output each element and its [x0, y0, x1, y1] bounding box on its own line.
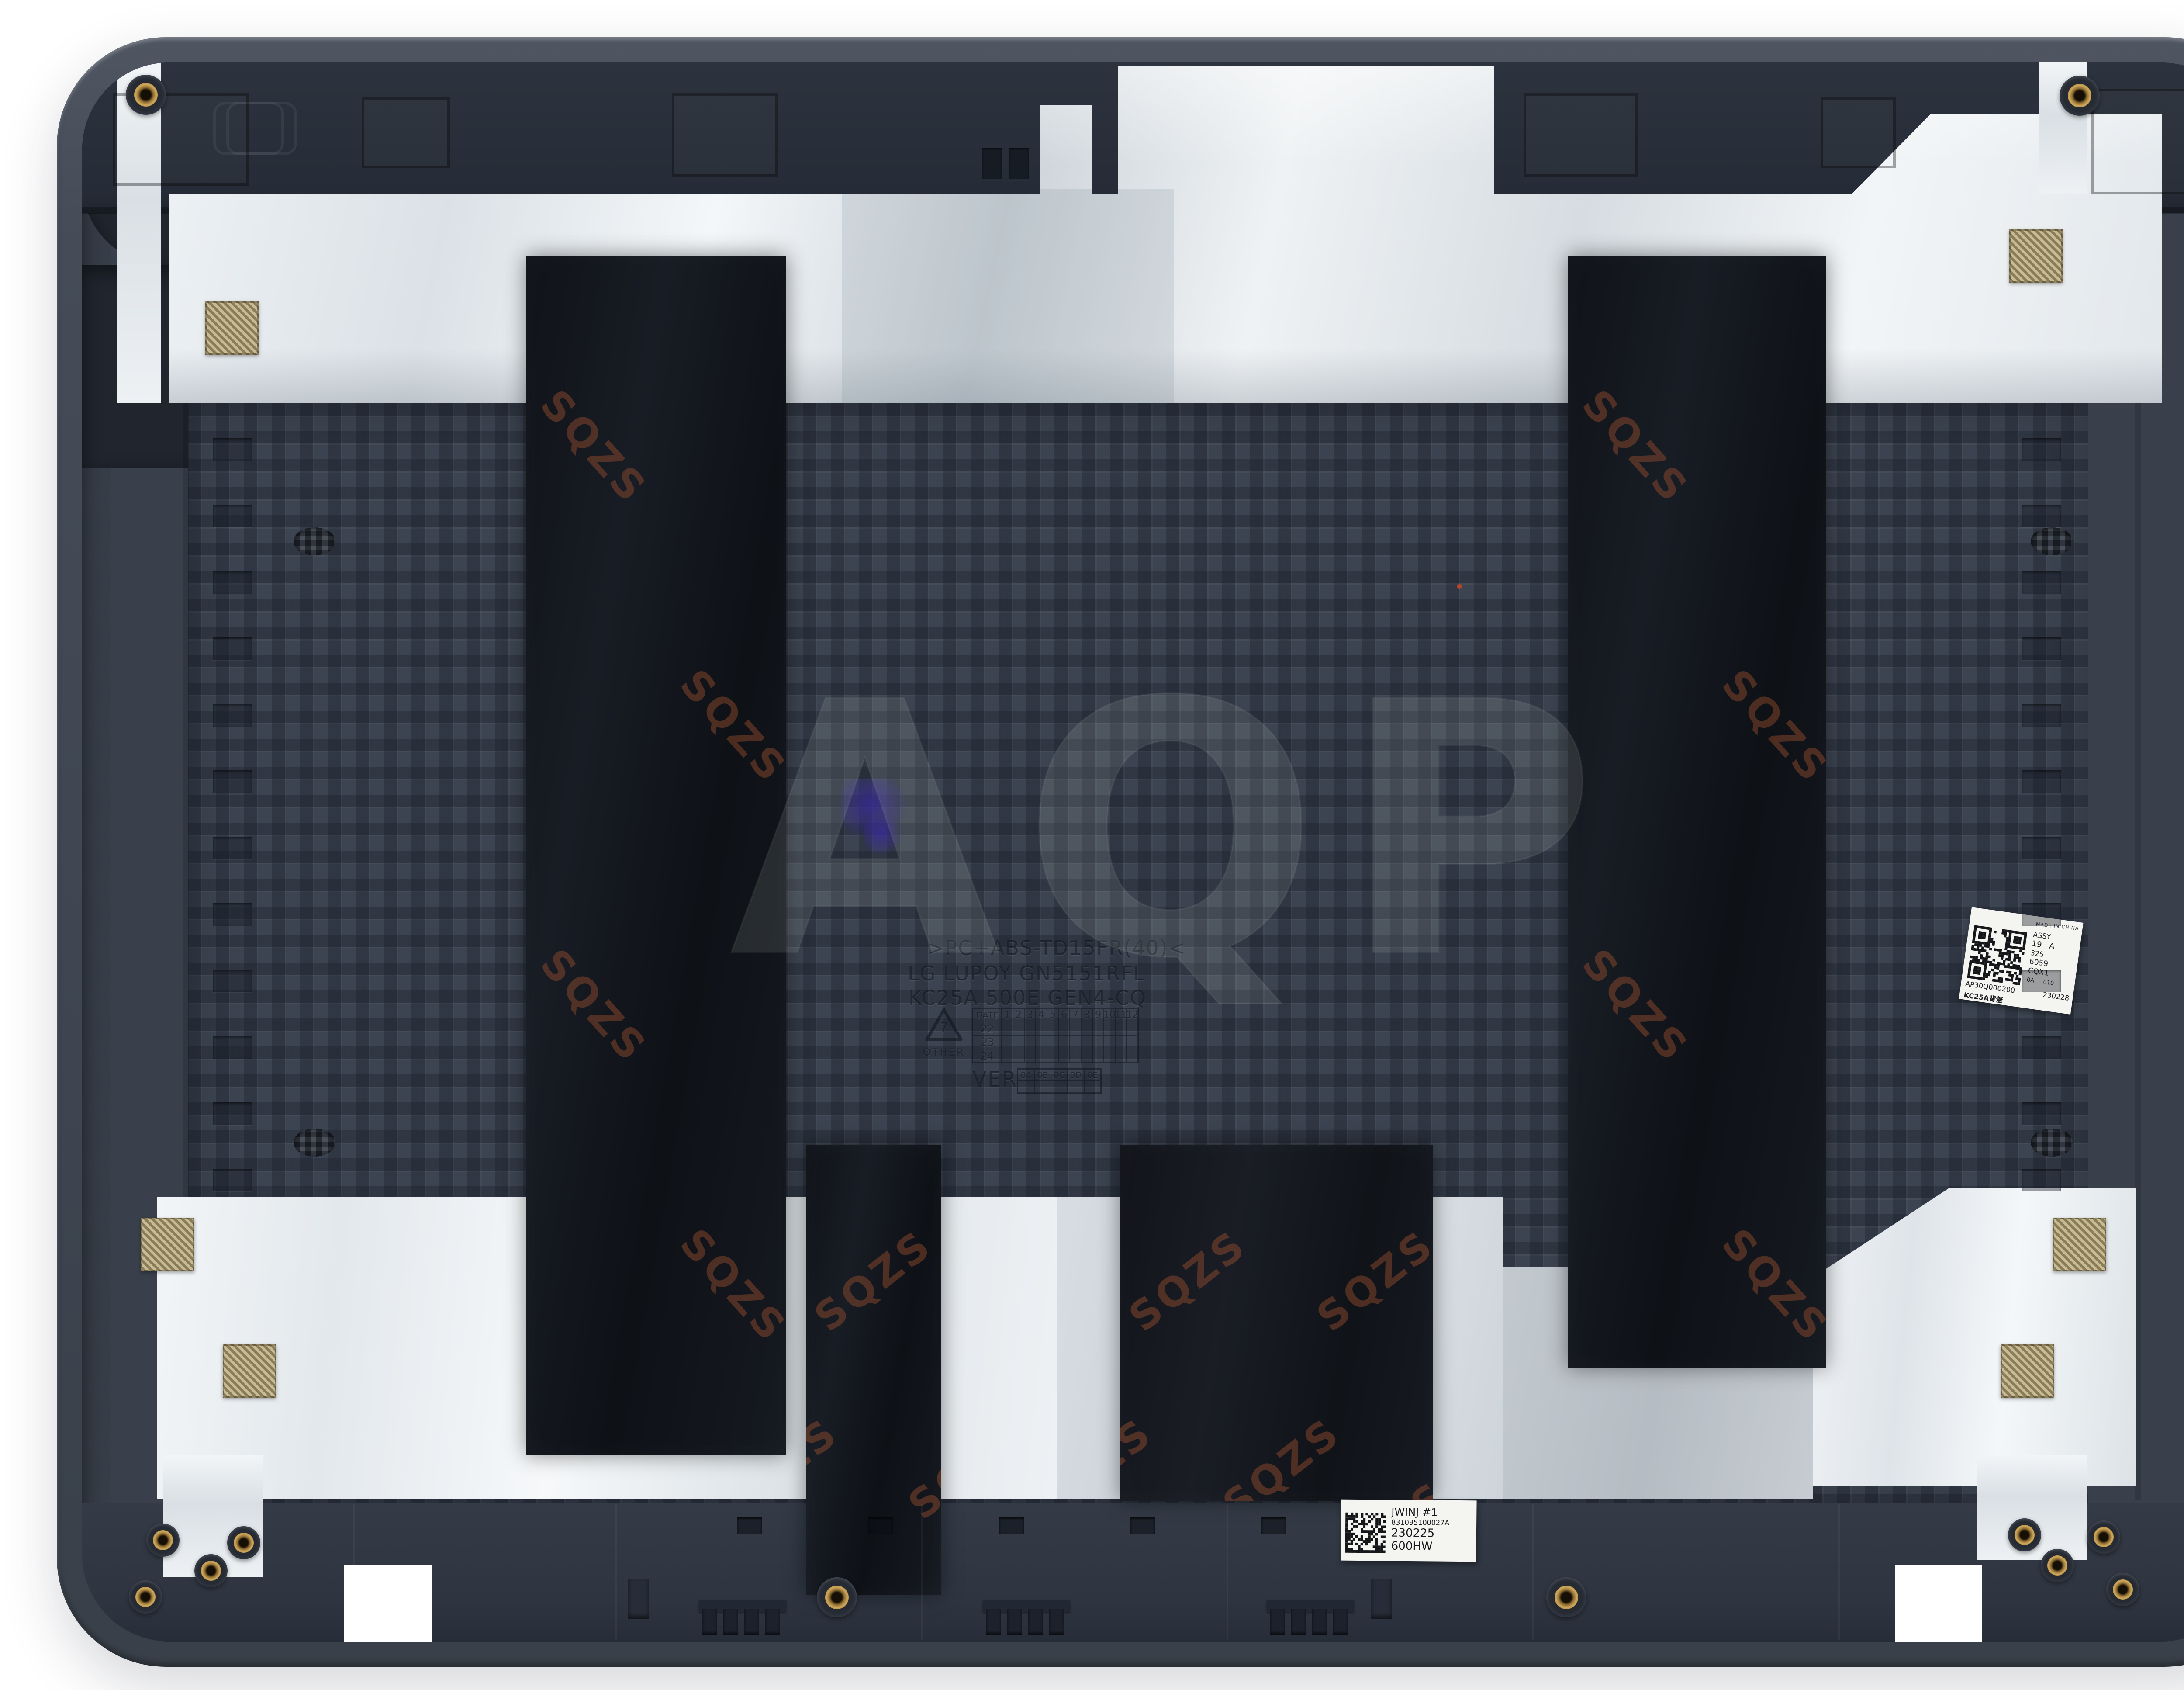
date-grid-cell: [1081, 1049, 1092, 1063]
sqzs-watermark-text: SQZS: [806, 1145, 847, 1153]
snap-clip-tooth: [1312, 1609, 1327, 1635]
date-grid-cell: DATE: [973, 1008, 1002, 1022]
bottom-rect-hole: [1130, 1517, 1155, 1534]
date-grid-cell: [1104, 1035, 1115, 1049]
screw-boss: [126, 75, 166, 115]
snap-clip-tooth: [765, 1609, 780, 1635]
qr-code: [1967, 925, 2027, 985]
date-grid-cell: 11: [1115, 1008, 1127, 1022]
date-grid-cell: 2: [1013, 1008, 1024, 1022]
brass-insert: [2015, 1525, 2035, 1545]
sqzs-watermark-text: SQZS: [806, 1221, 941, 1341]
hinge-notch-right: [1895, 1565, 1982, 1642]
laptop-lcd-back-cover: SQZSSQZSSQZSSQZSSQZSSQZSSQZSSQZSSQZSSQZS…: [57, 37, 2184, 1667]
recycle-code: 7: [924, 1020, 964, 1035]
bottom-seam-line: [921, 1504, 923, 1640]
snap-clip-tooth: [702, 1609, 717, 1635]
ladder-slot-right: [2022, 1102, 2061, 1125]
assy-label-sticker: MADE IN CHINA ASSY 19 A 32S 6059 CQX1 0A…: [1959, 907, 2084, 1015]
sqzs-watermark-text: SQZS: [900, 1145, 941, 1153]
serial-number: 831095100027A: [1391, 1518, 1474, 1527]
date-grid-cell: [1047, 1049, 1058, 1063]
date-grid-cell: [1013, 1022, 1024, 1035]
date-grid-cell: [1024, 1022, 1036, 1035]
date-grid-cell: 10: [1104, 1008, 1115, 1022]
sqzs-watermark-text: SQZS: [1713, 661, 1826, 793]
sqzs-watermark-text: SQZS: [1120, 1409, 1162, 1501]
date-grid-cell: 8: [1081, 1008, 1092, 1022]
date-grid-cell: [1104, 1049, 1115, 1063]
ladder-slot-left: [213, 438, 252, 461]
ladder-slot-left: [213, 1102, 252, 1125]
date-grid-cell: [1058, 1049, 1070, 1063]
date-grid-cell: 3: [1024, 1008, 1036, 1022]
ladder-slot-left: [213, 505, 252, 527]
ejector-waffle-mark: [2031, 1129, 2073, 1157]
ladder-slot-left: [213, 970, 252, 992]
top-molded-box: [672, 93, 778, 177]
snap-clip-tooth: [1049, 1609, 1064, 1635]
date-grid-cell: 12: [1127, 1008, 1138, 1022]
bottom-rect-hole: [868, 1517, 893, 1534]
ver-grid-cell: [1068, 1081, 1084, 1093]
ladder-slot-left: [213, 1036, 252, 1059]
ladder-slot-right: [2022, 438, 2061, 461]
ver-label: VER: [972, 1067, 1017, 1092]
sqzs-watermark-text: SQZS: [1308, 1221, 1433, 1341]
ladder-slot-right: [2022, 970, 2061, 992]
ladder-slot-right: [2022, 637, 2061, 660]
top-molded-box: [1821, 97, 1896, 168]
date-grid-cell: [1070, 1035, 1081, 1049]
brass-insert: [1555, 1586, 1578, 1609]
blue-ink-smudge-small: [864, 818, 903, 853]
ladder-slot-left: [213, 770, 252, 793]
snap-clip-tooth: [1333, 1609, 1348, 1635]
date-grid-cell: [1070, 1022, 1081, 1035]
date-grid-cell: [1081, 1035, 1092, 1049]
top-molded-box: [2091, 89, 2184, 194]
brass-insert: [2094, 1527, 2114, 1547]
snap-clip-tooth: [1007, 1609, 1022, 1635]
date-grid-cell: 7: [1070, 1008, 1081, 1022]
brass-insert: [234, 1533, 254, 1553]
snap-clip-tooth: [1270, 1609, 1285, 1635]
latch-post: [628, 1579, 649, 1619]
brass-insert: [2068, 84, 2091, 107]
date-grid-cell: [1092, 1049, 1104, 1063]
screw-boss: [2106, 1573, 2139, 1606]
date-grid-cell: [1127, 1022, 1138, 1035]
snap-clip-tooth: [986, 1609, 1001, 1635]
foil-gray-wash: [842, 189, 1174, 403]
ladder-slot-left: [213, 1169, 252, 1191]
bottom-rect-hole: [1261, 1517, 1286, 1534]
sqzs-watermark-text: SQZS: [806, 1409, 847, 1529]
ver-grid-cell: [1051, 1081, 1068, 1093]
mylar-tape-right-strip: SQZSSQZSSQZSSQZSSQZSSQZSSQZSSQZSSQZSSQZS…: [1568, 256, 1826, 1368]
date-grid-cell: [1036, 1022, 1047, 1035]
datamatrix-code: [1345, 1513, 1386, 1553]
screw-boss: [2008, 1518, 2041, 1551]
bottom-rect-hole: [999, 1517, 1024, 1534]
date-grid-cell: [1013, 1049, 1024, 1063]
ladder-slot-right: [2022, 704, 2061, 727]
ladder-slot-left: [213, 837, 252, 859]
date-grid-cell: [1002, 1049, 1013, 1063]
ver-grid-cell: 0B: [1034, 1069, 1051, 1081]
bottom-seam-line: [615, 1504, 617, 1640]
sqzs-watermark-text: SQZS: [1214, 1145, 1350, 1153]
molded-resin-line: LG LUPOY GN5151RFL: [908, 962, 1145, 985]
sqzs-watermark-text: SQZS: [531, 940, 657, 1072]
recycle-symbol: 7 OTHER: [924, 1007, 964, 1064]
date-grid-cell: [1024, 1035, 1036, 1049]
brass-insert: [153, 1530, 173, 1550]
brass-insert: [135, 1587, 156, 1607]
sqzs-watermark-text: SQZS: [1573, 940, 1698, 1072]
sqzs-watermark-text: SQZS: [1214, 1409, 1350, 1501]
gold-emi-pad: [141, 1218, 194, 1271]
screw-boss: [129, 1580, 162, 1614]
bottom-seam-line: [1532, 1504, 1534, 1640]
serial-date-code: 230225: [1391, 1527, 1474, 1541]
mylar-tape-center-square: SQZSSQZSSQZSSQZSSQZSSQZSSQZSSQZSSQZSSQZS…: [1120, 1145, 1433, 1501]
date-grid-cell: [1058, 1035, 1070, 1049]
screw-boss: [146, 1524, 180, 1557]
brass-insert: [134, 83, 158, 107]
date-grid-cell: [1127, 1035, 1138, 1049]
bottom-seam-line: [1227, 1504, 1228, 1640]
ladder-slot-left: [213, 571, 252, 594]
top-molded-box: [362, 97, 450, 168]
date-grid-cell: 5: [1047, 1008, 1058, 1022]
ladder-slot-right: [2022, 770, 2061, 793]
date-grid-cell: 4: [1036, 1008, 1047, 1022]
date-grid-cell: [1115, 1049, 1127, 1063]
molded-material-line: >PC+ABS-TD15FR(40)<: [927, 936, 1186, 960]
date-grid-cell: [1036, 1049, 1047, 1063]
date-grid-cell: 6: [1058, 1008, 1070, 1022]
ver-grid-cell: 0E: [1084, 1069, 1101, 1081]
screw-boss: [194, 1554, 228, 1587]
ladder-slot-right: [2022, 505, 2061, 527]
date-grid-cell: 9: [1092, 1008, 1104, 1022]
brass-insert: [825, 1586, 849, 1609]
date-grid-cell: [1104, 1022, 1115, 1035]
photo-background: SQZSSQZSSQZSSQZSSQZSSQZSSQZSSQZSSQZSSQZS…: [0, 0, 2184, 1690]
sqzs-watermark-text: SQZS: [1402, 1145, 1433, 1153]
right-side-rail: [2135, 215, 2141, 1500]
date-grid-cell: [1092, 1035, 1104, 1049]
date-grid-cell: [1058, 1022, 1070, 1035]
date-grid-cell: [1115, 1022, 1127, 1035]
molded-model-line: KC25A 500E GEN4-CQ: [909, 986, 1147, 1010]
molded-text-block: >PC+ABS-TD15FR(40)< LG LUPOY GN5151RFL K…: [908, 936, 1327, 1129]
date-grid-cell: [1024, 1049, 1036, 1063]
date-grid-cell: [1092, 1022, 1104, 1035]
serial-label-sticker: JWINJ #1 831095100027A 230225 600HW: [1341, 1500, 1476, 1562]
ladder-slot-right: [2022, 1036, 2061, 1059]
snap-clip-tooth: [1291, 1609, 1306, 1635]
ladder-slot-right: [2022, 571, 2061, 594]
brass-insert: [2113, 1579, 2133, 1600]
gold-emi-pad: [223, 1344, 276, 1398]
latch-post: [1371, 1579, 1392, 1619]
screw-boss: [227, 1526, 260, 1559]
sqzs-watermark-text: SQZS: [1402, 1409, 1433, 1501]
sqzs-watermark-text: SQZS: [1120, 1145, 1162, 1153]
gold-emi-pad: [205, 301, 259, 355]
ladder-slot-left: [213, 637, 252, 660]
snap-clip-tooth: [744, 1609, 759, 1635]
recycle-label: OTHER: [922, 1047, 966, 1058]
snap-clip-tooth: [1028, 1609, 1043, 1635]
sqzs-watermark-text: SQZS: [671, 1220, 786, 1352]
mylar-tape-left-strip: SQZSSQZSSQZSSQZSSQZSSQZSSQZSSQZSSQZSSQZS…: [526, 256, 786, 1455]
date-grid-cell: [1047, 1035, 1058, 1049]
brass-insert: [201, 1561, 221, 1581]
date-grid-cell: [1081, 1022, 1092, 1035]
ladder-slot-left: [213, 903, 252, 926]
ver-grid-cell: [1084, 1081, 1101, 1093]
date-grid-cell: 1: [1002, 1008, 1013, 1022]
hinge-notch-left: [344, 1565, 432, 1642]
date-grid-cell: [1002, 1022, 1013, 1035]
screw-boss: [1546, 1577, 1586, 1617]
ladder-slot-right: [2022, 903, 2061, 926]
ejector-waffle-mark: [2031, 527, 2073, 555]
ver-grid-cell: [1018, 1081, 1034, 1093]
ladder-slot-left: [213, 704, 252, 727]
date-grid-cell: [1047, 1022, 1058, 1035]
top-molded-box: [1524, 93, 1638, 177]
ver-grid-cell: 0D: [1068, 1069, 1084, 1081]
line-code: 600HW: [1391, 1540, 1474, 1554]
sqzs-watermark-text: SQZS: [531, 381, 657, 513]
bottom-seam-line: [353, 1504, 355, 1640]
date-grid-cell: [1070, 1049, 1081, 1063]
screw-boss: [2060, 76, 2100, 116]
serial-text-column: JWINJ #1 831095100027A 230225 600HW: [1391, 1506, 1475, 1554]
date-grid-cell: [1002, 1035, 1013, 1049]
screw-boss: [2087, 1520, 2120, 1554]
station-text: JWINJ #1: [1391, 1506, 1474, 1519]
screw-boss: [2041, 1549, 2074, 1582]
top-vent-hole: [1009, 148, 1029, 179]
ver-grid: 0A0B0C0D0E: [1017, 1068, 1102, 1094]
date-grid-cell: [1127, 1049, 1138, 1063]
date-grid-cell: 22: [973, 1022, 1002, 1035]
gold-emi-pad: [2053, 1218, 2106, 1271]
sqzs-watermark-text: SQZS: [671, 661, 786, 793]
date-grid-cell: 24: [973, 1049, 1002, 1063]
date-grid: DATE123456789101112222324: [972, 1008, 1139, 1063]
date-grid-cell: 23: [973, 1035, 1002, 1049]
date-grid-cell: [1013, 1035, 1024, 1049]
bottom-seam-line: [1838, 1504, 1840, 1640]
ver-grid-cell: 0C: [1051, 1069, 1068, 1081]
sqzs-watermark-text: SQZS: [1120, 1221, 1256, 1341]
red-speck: [1457, 584, 1462, 589]
ejector-waffle-mark: [294, 527, 335, 555]
date-grid-cell: [1036, 1035, 1047, 1049]
screw-boss: [817, 1577, 857, 1617]
brass-insert: [2047, 1555, 2067, 1576]
date-grid-cell: [1115, 1035, 1127, 1049]
sqzs-watermark-text: SQZS: [1713, 1220, 1826, 1352]
ejector-waffle-mark: [294, 1129, 335, 1157]
cover-inner-shell: SQZSSQZSSQZSSQZSSQZSSQZSSQZSSQZSSQZSSQZS…: [82, 62, 2184, 1642]
gold-emi-pad: [2001, 1344, 2054, 1398]
bottom-rect-hole: [737, 1517, 762, 1534]
ladder-slot-right: [2022, 837, 2061, 859]
gold-emi-pad: [2009, 229, 2063, 283]
ver-grid-cell: [1034, 1081, 1051, 1093]
snap-clip-tooth: [723, 1609, 738, 1635]
rev-letter: A: [2049, 942, 2055, 952]
ladder-slot-right: [2022, 1169, 2061, 1191]
sqzs-watermark-text: SQZS: [1573, 381, 1698, 513]
ver-grid-cell: 0A: [1018, 1069, 1034, 1081]
top-vent-hole: [982, 148, 1002, 179]
